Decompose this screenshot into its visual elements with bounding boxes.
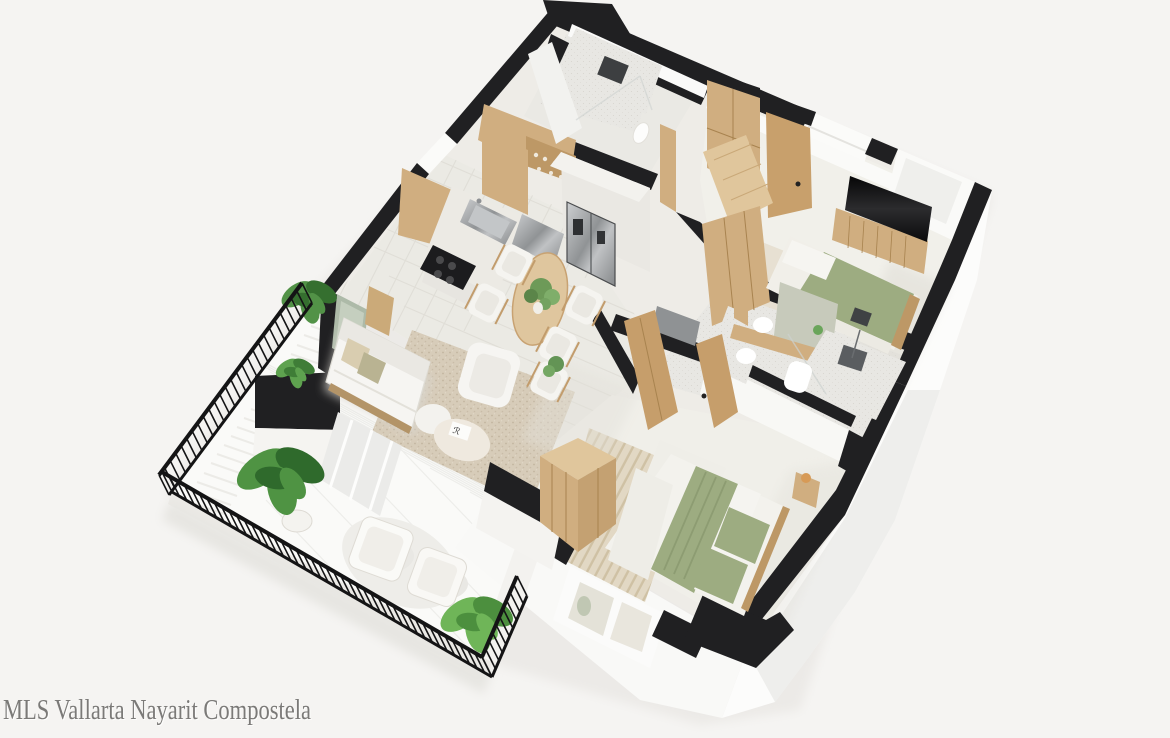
svg-text:MLS Vallarta Nayarit Compostel: MLS Vallarta Nayarit Compostela [3,695,311,726]
